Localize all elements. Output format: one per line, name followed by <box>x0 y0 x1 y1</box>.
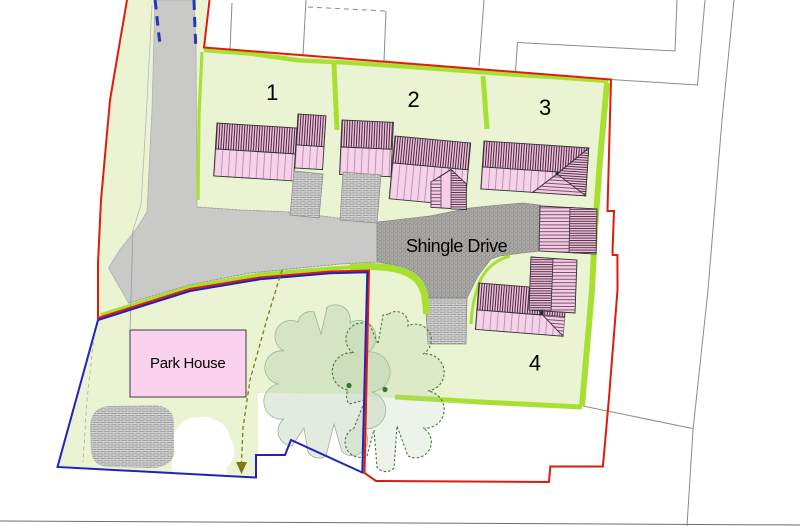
svg-text:1: 1 <box>266 80 278 105</box>
svg-text:Shingle Drive: Shingle Drive <box>406 236 508 256</box>
svg-text:Park House: Park House <box>150 355 225 372</box>
svg-text:2: 2 <box>407 87 419 112</box>
svg-text:4: 4 <box>529 351 541 376</box>
svg-text:3: 3 <box>539 95 551 120</box>
